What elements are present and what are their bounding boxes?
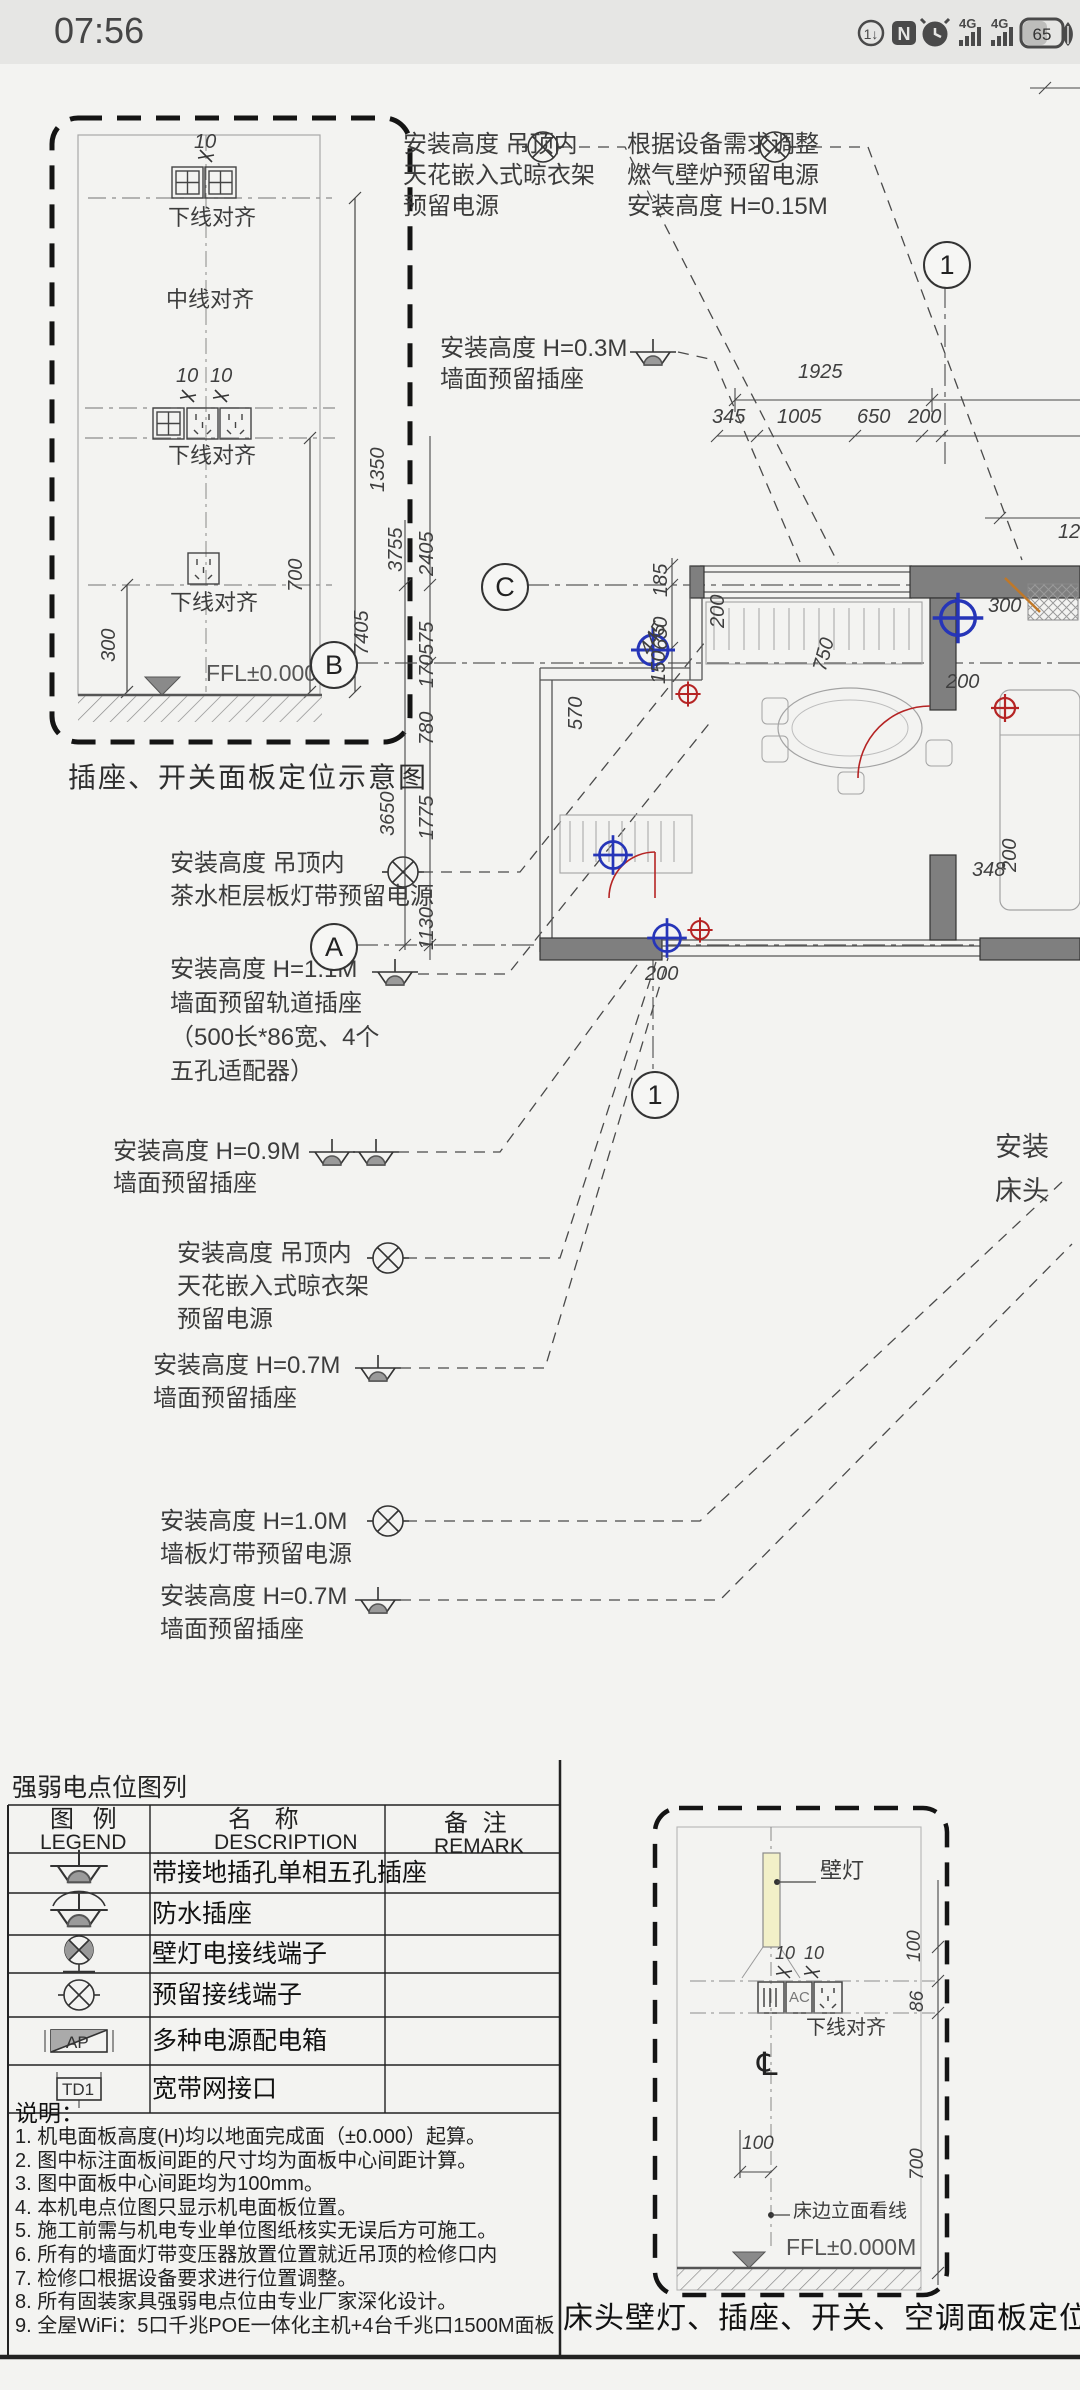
callout-line: 天花嵌入式晾衣架 <box>403 164 595 188</box>
callout-line: 墙面预留轨道插座 <box>170 992 362 1016</box>
wall-lamp-label: 壁灯 <box>820 1860 864 1882</box>
callout-line: 安装高度 H=0.15M <box>627 195 828 219</box>
dim: 700 <box>908 2148 927 2180</box>
callout-line: 安装高度 吊顶内 <box>170 852 345 876</box>
dim: 7405 <box>352 611 372 656</box>
dim-700: 700 <box>286 559 306 592</box>
callout-line: 安装高度 H=0.7M <box>160 1585 347 1609</box>
notes-list: 1. 机电面板高度(H)均以地面完成面（±0.000）起算。 2. 图中标注面板… <box>15 2126 555 2338</box>
callout-line: 燃气壁炉预留电源 <box>627 164 819 188</box>
dim: 100 <box>905 1930 924 1962</box>
dim: 3650 <box>378 792 398 837</box>
dim: 2405 <box>417 532 437 577</box>
dim-10: 10 <box>775 1944 795 1962</box>
note-item: 1. 机电面板高度(H)均以地面完成面（±0.000）起算。 <box>15 2126 555 2150</box>
legend-row-name: 壁灯电接线端子 <box>152 1942 327 1967</box>
legend-row-name: 预留接线端子 <box>152 1983 302 2008</box>
callout-line: 安装高度 吊顶内 <box>403 133 578 157</box>
legend-col2-en: DESCRIPTION <box>214 1832 358 1853</box>
dim-10: 10 <box>804 1944 824 1962</box>
dim: 650 <box>857 407 890 427</box>
legend-symbols <box>45 1850 113 2108</box>
align-label: 下线对齐 <box>170 592 258 614</box>
edge-label: 安装 <box>995 1134 1049 1161</box>
dim: 86 <box>908 1991 927 2012</box>
dim: 780 <box>417 712 437 745</box>
dim: 300 <box>988 596 1021 616</box>
legend-col2-cn: 名 称 <box>228 1808 307 1832</box>
note-item: 5. 施工前需与机电专业单位图纸核实无误后方可施工。 <box>15 2220 555 2244</box>
grid-bubble-1-top: 1 <box>923 241 971 289</box>
dim: 575 <box>417 622 437 655</box>
dim: 185 <box>651 564 671 597</box>
edge-label: 床头 <box>995 1178 1049 1205</box>
dim: 345 <box>712 407 745 427</box>
callout-line: 安装高度 H=0.7M <box>153 1354 340 1378</box>
legend-symbol-td1-label: TD1 <box>62 2081 94 2098</box>
align-label: 下线对齐 <box>168 207 256 229</box>
legend-symbol-ap-label: AP <box>66 2034 89 2051</box>
legend-col3-cn: 备 注 <box>444 1812 511 1836</box>
dim: 1775 <box>417 796 437 841</box>
callout-line: 五孔适配器） <box>170 1060 314 1084</box>
dim: 200 <box>708 595 728 628</box>
wall-lamp-terminal-icon <box>63 1936 95 1972</box>
dim: 200 <box>645 964 678 984</box>
legend-row-name: 带接地插孔单相五孔插座 <box>152 1861 427 1886</box>
note-item: 2. 图中标注面板间距的尺寸均为面板中心间距计算。 <box>15 2150 555 2174</box>
legend-row-name: 宽带网接口 <box>152 2077 277 2102</box>
callout-line: 天花嵌入式晾衣架 <box>177 1275 369 1299</box>
align-label: 中线对齐 <box>166 289 254 311</box>
dim: 570 <box>566 697 586 730</box>
legend-col1-cn: 图 例 <box>50 1808 123 1832</box>
bed-line-label: 床边立面看线 <box>793 2202 907 2221</box>
callout-line: 安装高度 H=0.9M <box>113 1140 300 1164</box>
callout-line: 根据设备需求调整 <box>627 133 819 157</box>
callout-line: （500长*86宽、4个 <box>170 1026 379 1050</box>
legend-row-name: 防水插座 <box>152 1902 252 1927</box>
note-item: 6. 所有的墙面灯带变压器放置位置就近吊顶的检修口内 <box>15 2244 555 2268</box>
callout-line: 墙面预留插座 <box>440 368 584 392</box>
centerline-mark: ℄ <box>757 2048 778 2080</box>
waterproof-socket-icon <box>50 1891 108 1926</box>
note-item: 3. 图中面板中心间距均为100mm。 <box>15 2173 555 2197</box>
callout-line: 预留电源 <box>177 1308 273 1332</box>
callout-line: 墙面预留插座 <box>160 1618 304 1642</box>
dim: 1130 <box>417 907 437 950</box>
dim-10: 10 <box>210 366 232 386</box>
dim-1350: 1350 <box>368 448 388 493</box>
dim: 200 <box>1000 839 1020 872</box>
callout-line: 墙面预留插座 <box>113 1172 257 1196</box>
dim: 150 <box>649 651 669 684</box>
grid-bubble-c: C <box>481 563 529 611</box>
dim: 1005 <box>777 407 822 427</box>
notes-title: 说明： <box>15 2102 84 2125</box>
note-item: 4. 本机电点位图只显示机电面板位置。 <box>15 2197 555 2221</box>
dim: 200 <box>908 407 941 427</box>
dim: 3755 <box>386 528 406 573</box>
callout-line: 墙面预留插座 <box>153 1387 297 1411</box>
align-label: 下线对齐 <box>806 2018 886 2038</box>
dim: 100 <box>742 2134 774 2153</box>
note-item: 9. 全屋WiFi：5口千兆POE一体化主机+4台千兆口1500M面板 <box>15 2315 555 2339</box>
callout-line: 安装高度 吊顶内 <box>177 1242 352 1266</box>
legend-col1-en: LEGEND <box>40 1832 126 1853</box>
align-label: 下线对齐 <box>168 445 256 467</box>
callout-line: 安装高度 H=0.3M <box>440 337 627 361</box>
callout-line: 墙板灯带预留电源 <box>160 1543 352 1567</box>
grid-bubble-a: A <box>310 923 358 971</box>
legend-col3-en: REMARK <box>434 1836 524 1857</box>
ffl-label: FFL±0.000M <box>786 2236 916 2259</box>
bedhead-caption: 床头壁灯、插座、开关、空调面板定位 <box>563 2304 1080 2334</box>
note-item: 8. 所有固装家具强弱电点位由专业厂家深化设计。 <box>15 2291 555 2315</box>
grid-bubble-1-bottom: 1 <box>631 1071 679 1119</box>
legend-row-name: 多种电源配电箱 <box>152 2029 327 2054</box>
dim-10: 10 <box>194 132 216 152</box>
callout-leaders <box>398 147 1072 1600</box>
callout-line: 预留电源 <box>403 195 499 219</box>
note-item: 7. 检修口根据设备要求进行位置调整。 <box>15 2268 555 2292</box>
legend-title: 强弱电点位图列 <box>12 1776 187 1801</box>
ac-panel-label: AC <box>789 1990 810 2005</box>
detail-caption: 插座、开关面板定位示意图 <box>68 764 428 792</box>
floor-plan <box>540 566 1080 960</box>
dim: 12 <box>1058 522 1080 542</box>
phone-screenshot: 07:56 1↓ N 4G 4G <box>0 0 1080 2390</box>
dim: 1925 <box>798 362 843 382</box>
callout-line: 茶水柜层板灯带预留电源 <box>170 885 434 909</box>
callout-line: 安装高度 H=1.0M <box>160 1510 347 1534</box>
dim-300: 300 <box>99 629 119 662</box>
dim: 200 <box>946 672 979 692</box>
dim: 170 <box>417 655 437 688</box>
dim-10: 10 <box>176 366 198 386</box>
